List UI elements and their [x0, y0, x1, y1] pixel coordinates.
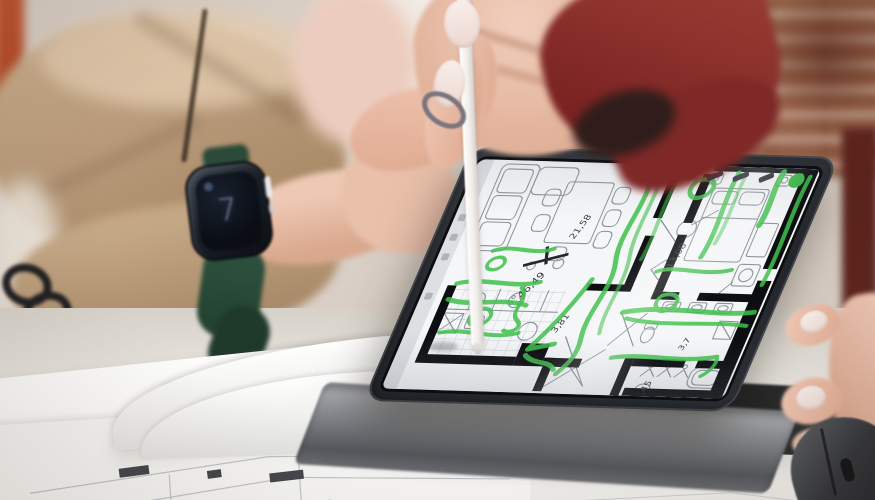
photo-scene: 7 — [0, 0, 875, 500]
person1-shoulder-highlight — [40, 8, 320, 108]
watchface-complication-icon — [203, 182, 213, 192]
watchface-digit: 7 — [216, 192, 239, 229]
smartwatch-screen: 7 — [194, 170, 265, 253]
watch-crown — [268, 204, 274, 214]
smartwatch: 7 — [182, 158, 275, 263]
stylus-tip-shadow — [428, 342, 458, 351]
